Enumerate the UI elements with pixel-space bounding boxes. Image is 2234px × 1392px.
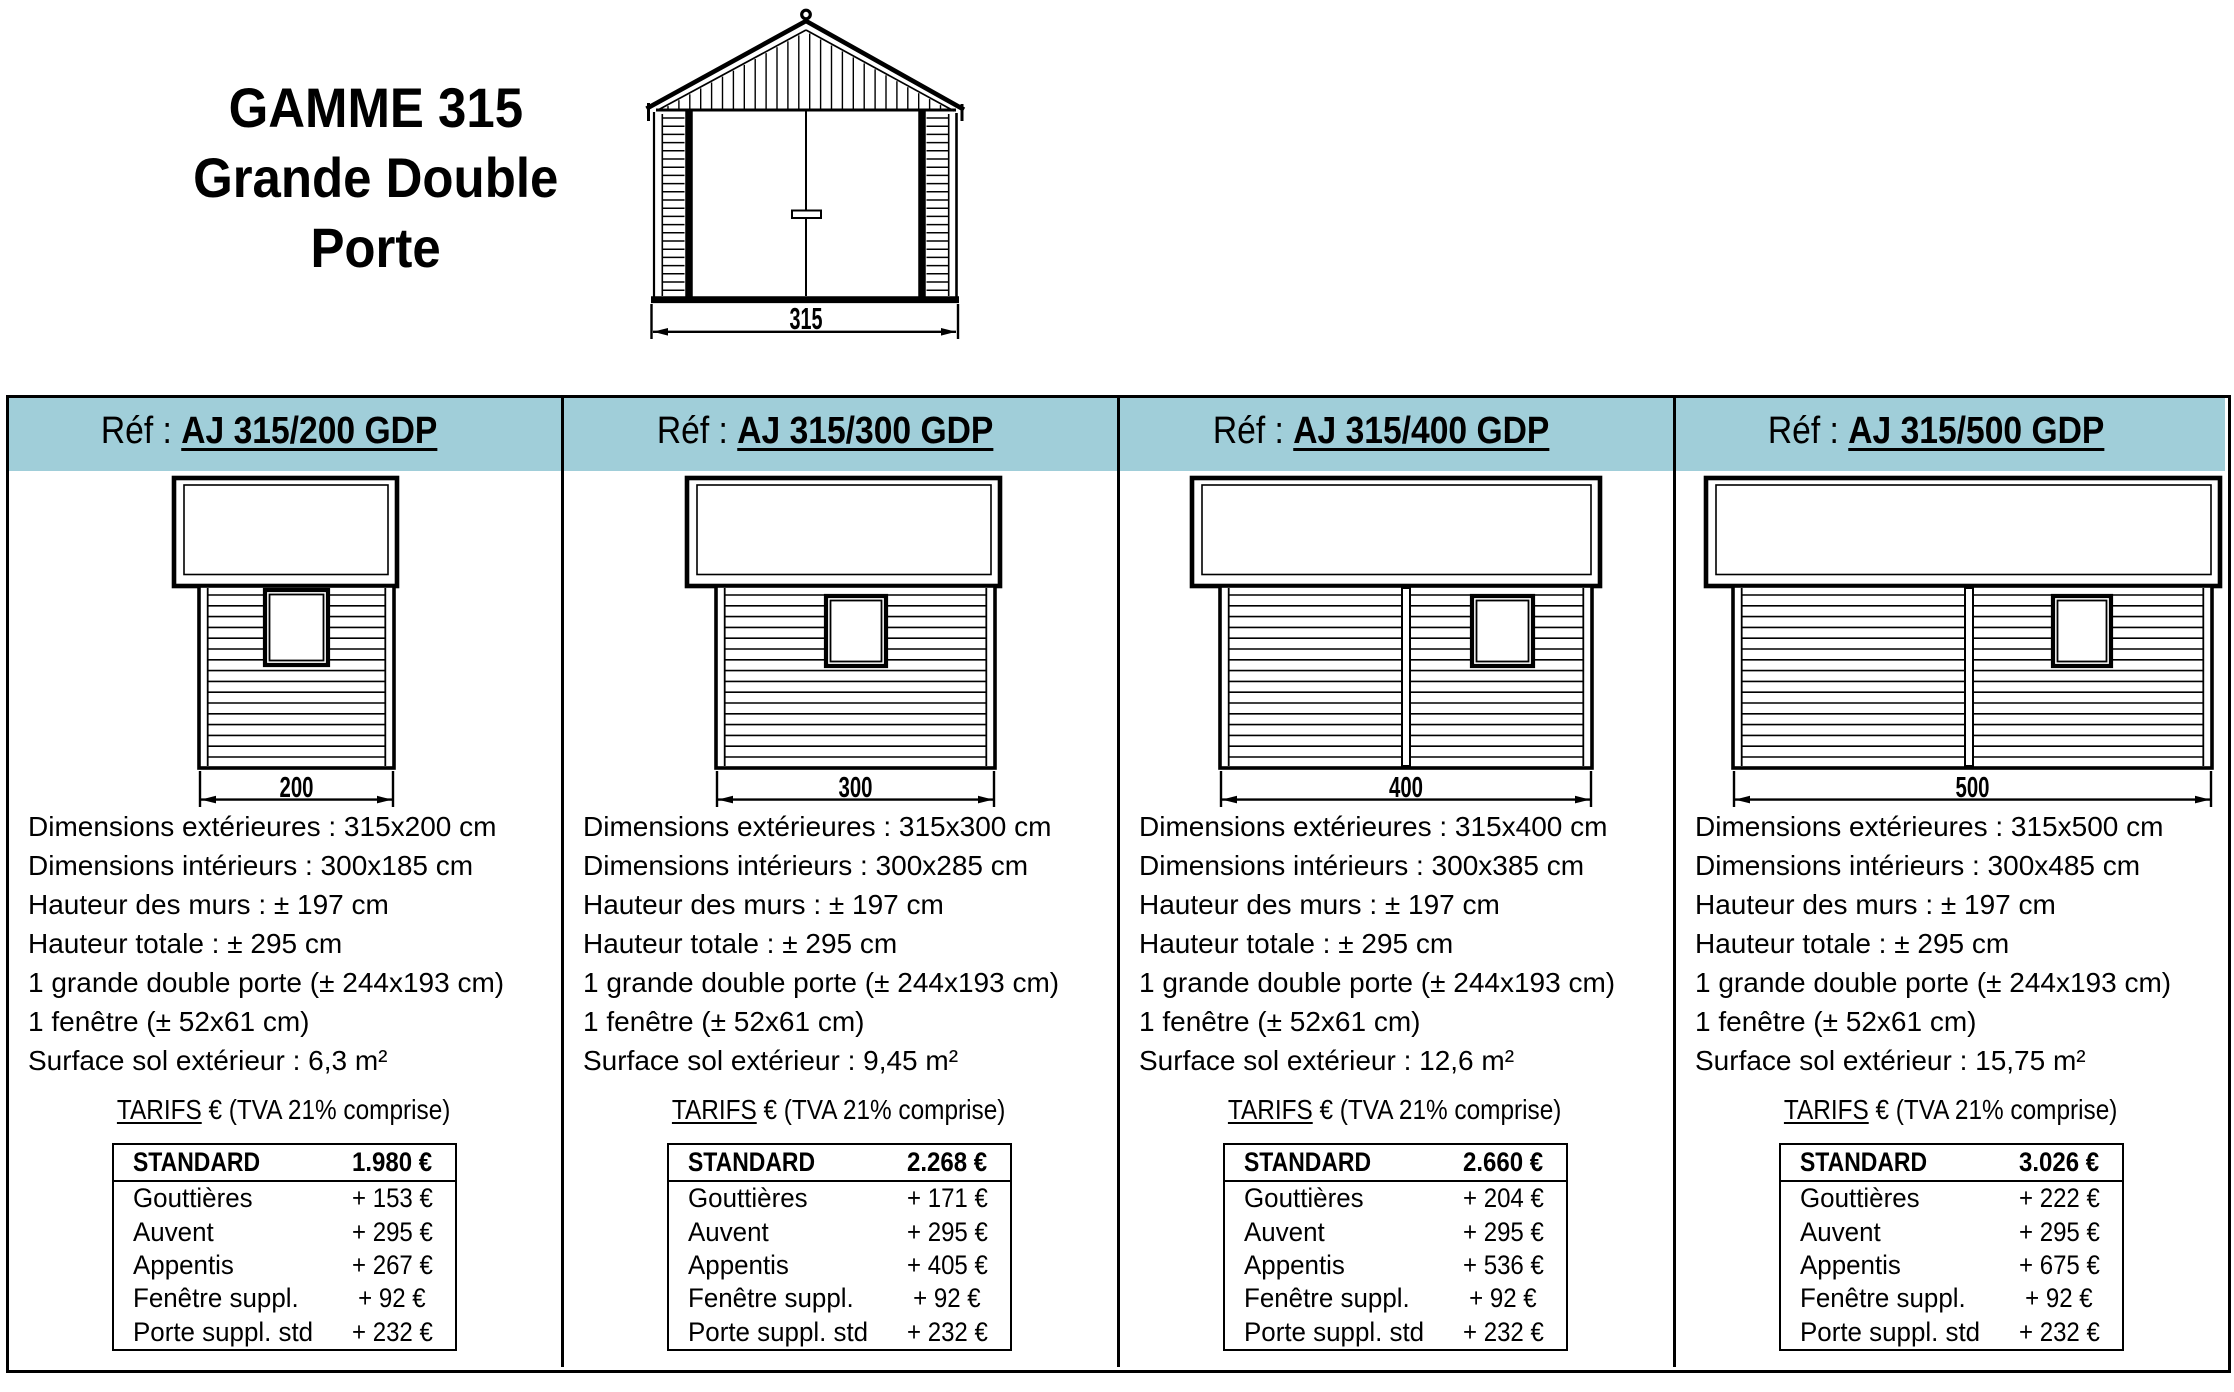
svg-text:315: 315 <box>790 301 823 336</box>
svg-text:500: 500 <box>1956 772 1990 804</box>
svg-text:200: 200 <box>280 772 314 804</box>
svg-text:400: 400 <box>1389 772 1423 804</box>
svg-text:300: 300 <box>839 772 873 804</box>
